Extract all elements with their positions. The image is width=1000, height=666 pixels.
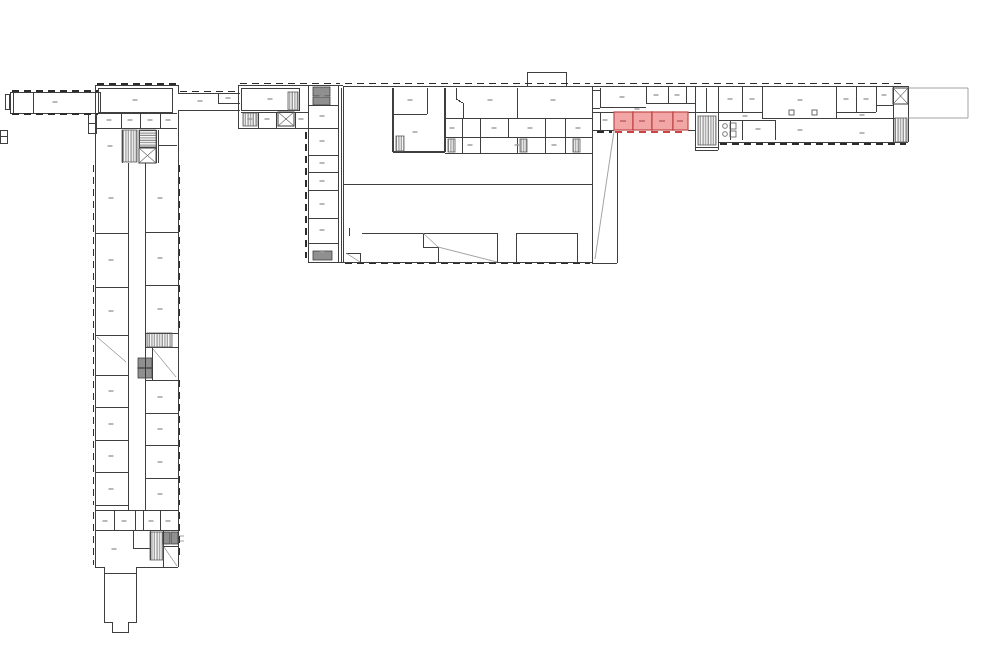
elevator-x-cross <box>893 88 908 104</box>
room-number-label <box>109 423 114 424</box>
stair-hatch <box>698 116 716 145</box>
room-number-label <box>248 118 253 119</box>
room-number-label <box>158 308 163 309</box>
highlighted-room-label <box>659 120 665 122</box>
room-number-label <box>468 144 473 145</box>
room-number-label <box>320 115 325 116</box>
wall-line <box>527 72 566 86</box>
shaft-hatch <box>171 532 178 544</box>
wall-line <box>5 94 9 109</box>
construction-line <box>595 131 614 259</box>
room-number-label <box>675 94 680 95</box>
shaft-hatch <box>313 87 330 96</box>
room-number-label <box>320 162 325 163</box>
room-number-label <box>109 390 114 391</box>
room-number-label <box>528 127 533 128</box>
room-number-label <box>320 229 325 230</box>
room-number-label <box>320 95 325 96</box>
sink-fixture-icon <box>730 123 736 129</box>
room-number-label <box>798 129 803 130</box>
highlighted-room-label <box>639 120 645 122</box>
room-number-label <box>576 127 581 128</box>
room-number-label <box>148 119 153 120</box>
room-number-label <box>158 428 163 429</box>
room-number-label <box>860 114 865 115</box>
room-number-label <box>552 144 557 145</box>
toilet-fixture-icon <box>723 124 728 129</box>
elevator-x-cross <box>278 112 294 126</box>
room-number-label <box>620 96 625 97</box>
room-number-label <box>603 119 608 120</box>
room-number-label <box>844 98 849 99</box>
room-number-label <box>128 119 133 120</box>
structural-column <box>812 110 817 115</box>
room-number-label <box>492 127 497 128</box>
stair-hatch <box>150 532 163 560</box>
room-number-label <box>109 310 114 311</box>
sink-fixture-icon <box>730 131 736 137</box>
construction-line <box>153 349 176 377</box>
shaft-hatch <box>138 368 152 378</box>
construction-line <box>423 233 438 247</box>
construction-line <box>908 88 968 118</box>
toilet-fixture-icon <box>723 132 728 137</box>
room-number-label <box>112 548 117 549</box>
room-number-label <box>107 119 112 120</box>
floor-plan-canvas <box>0 0 1000 666</box>
room-number-label <box>226 97 231 98</box>
stair-hatch <box>122 130 137 162</box>
construction-line <box>164 547 177 566</box>
room-number-label <box>158 493 163 494</box>
room-number-label <box>103 520 108 521</box>
room-number-label <box>882 94 887 95</box>
room-number-label <box>158 257 163 258</box>
room-number-label <box>654 94 659 95</box>
room-number-label <box>268 98 273 99</box>
room-number-label <box>109 488 114 489</box>
room-number-label <box>109 455 114 456</box>
construction-line <box>346 253 360 262</box>
wall-line <box>423 233 438 262</box>
construction-line <box>438 247 497 262</box>
room-number-label <box>635 108 640 109</box>
room-number-label <box>860 132 865 133</box>
room-number-label <box>743 115 748 116</box>
room-number-label <box>551 99 556 100</box>
room-number-label <box>750 98 755 99</box>
room-number-label <box>320 203 325 204</box>
stair-hatch <box>573 139 580 152</box>
room-number-label <box>756 128 761 129</box>
shaft-hatch <box>313 97 330 105</box>
room-number-label <box>109 197 114 198</box>
stair-hatch <box>396 136 404 151</box>
room-number-label <box>53 101 58 102</box>
room-number-label <box>158 197 163 198</box>
room-number-label <box>798 99 803 100</box>
elevator-x-cross <box>139 148 156 163</box>
wall-line <box>456 88 463 118</box>
room-number-label <box>149 520 154 521</box>
highlighted-room-label <box>620 120 626 122</box>
room-number-label <box>109 259 114 260</box>
room-number-label <box>166 119 171 120</box>
shaft-hatch <box>163 532 170 544</box>
room-number-label <box>450 127 455 128</box>
room-number-label <box>158 396 163 397</box>
shaft-hatch <box>138 358 152 368</box>
structural-column <box>789 110 794 115</box>
room-number-label <box>133 99 138 100</box>
room-number-label <box>488 99 493 100</box>
room-number-label <box>515 144 520 145</box>
room-number-label <box>265 118 270 119</box>
stair-hatch <box>147 333 172 347</box>
stair-hatch <box>895 118 907 142</box>
room-number-label <box>320 251 325 252</box>
room-number-label <box>864 98 869 99</box>
stair-hatch <box>448 139 455 152</box>
room-number-label <box>299 118 304 119</box>
stair-hatch <box>520 139 527 152</box>
room-number-label <box>166 520 171 521</box>
room-number-label <box>320 140 325 141</box>
room-number-label <box>108 145 113 146</box>
room-number-label <box>320 180 325 181</box>
room-number-label <box>413 131 418 132</box>
wall-line <box>104 567 136 632</box>
room-number-label <box>198 100 203 101</box>
floor-plan-drawing <box>0 0 1000 666</box>
highlighted-room-label <box>677 120 683 122</box>
room-number-label <box>408 99 413 100</box>
stair-hatch <box>288 92 298 110</box>
room-number-label <box>158 461 163 462</box>
elevator-hatch <box>139 130 156 147</box>
room-number-label <box>122 520 127 521</box>
room-number-label <box>728 98 733 99</box>
construction-line <box>97 337 126 362</box>
